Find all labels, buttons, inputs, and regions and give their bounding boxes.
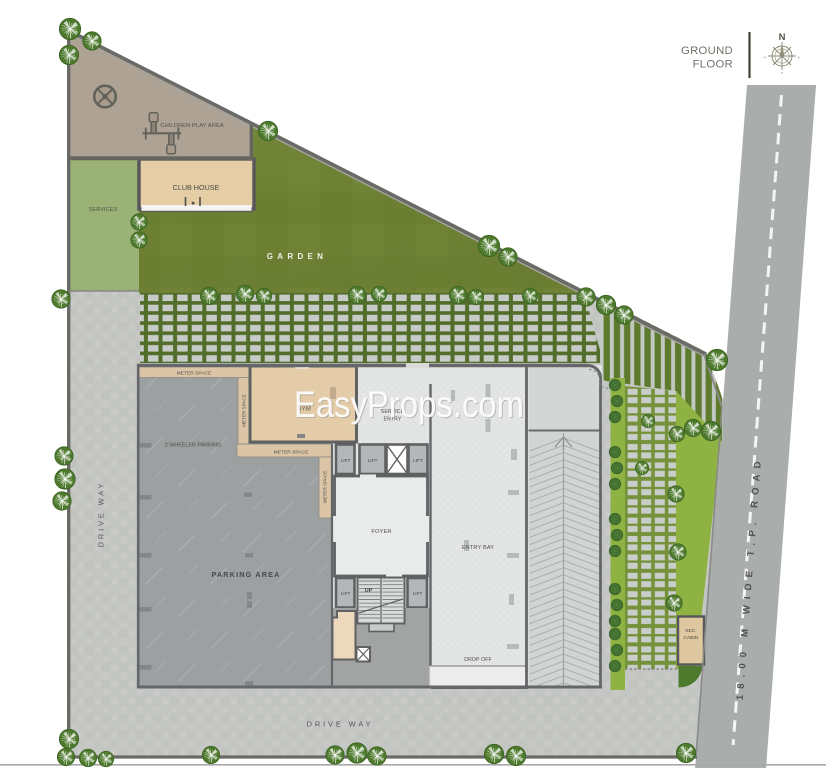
svg-text:LIFT: LIFT (341, 591, 351, 597)
svg-text:GROUND: GROUND (681, 45, 733, 57)
svg-text:METER SPACE: METER SPACE (274, 450, 309, 456)
svg-text:SEC.: SEC. (685, 628, 696, 634)
svg-text:LIFT: LIFT (368, 458, 378, 464)
svg-text:e: e (798, 55, 801, 60)
svg-text:CABIN: CABIN (684, 635, 699, 641)
svg-text:LIFT: LIFT (413, 458, 423, 464)
svg-text:DRIVE WAY: DRIVE WAY (97, 481, 106, 548)
svg-text:N: N (779, 32, 786, 43)
svg-text:EasyProps.com: EasyProps.com (294, 383, 524, 425)
svg-text:SERVICES: SERVICES (89, 207, 118, 213)
svg-text:2 WHEELER PARKING: 2 WHEELER PARKING (165, 443, 222, 449)
svg-text:s: s (781, 70, 783, 75)
svg-text:CLUB HOUSE: CLUB HOUSE (173, 183, 220, 192)
svg-text:METER SPACE: METER SPACE (177, 371, 212, 377)
svg-text:CHILDREN PLAY AREA: CHILDREN PLAY AREA (160, 123, 224, 129)
svg-text:DRIVE WAY: DRIVE WAY (307, 720, 374, 729)
svg-text:w: w (764, 55, 767, 60)
svg-text:DROP OFF: DROP OFF (464, 657, 492, 663)
svg-text:GARDEN: GARDEN (267, 252, 327, 261)
svg-text:METER SPACE: METER SPACE (323, 471, 328, 504)
svg-text:FLOOR: FLOOR (693, 59, 733, 71)
svg-text:LIFT: LIFT (413, 591, 423, 597)
svg-text:PARKING AREA: PARKING AREA (211, 570, 280, 579)
svg-text:LIFT: LIFT (341, 458, 351, 464)
svg-text:ENTRY BAY: ENTRY BAY (462, 545, 494, 551)
svg-text:METER SPACE: METER SPACE (242, 394, 247, 427)
svg-text:UP: UP (365, 588, 373, 594)
svg-text:FOYER: FOYER (371, 529, 391, 535)
